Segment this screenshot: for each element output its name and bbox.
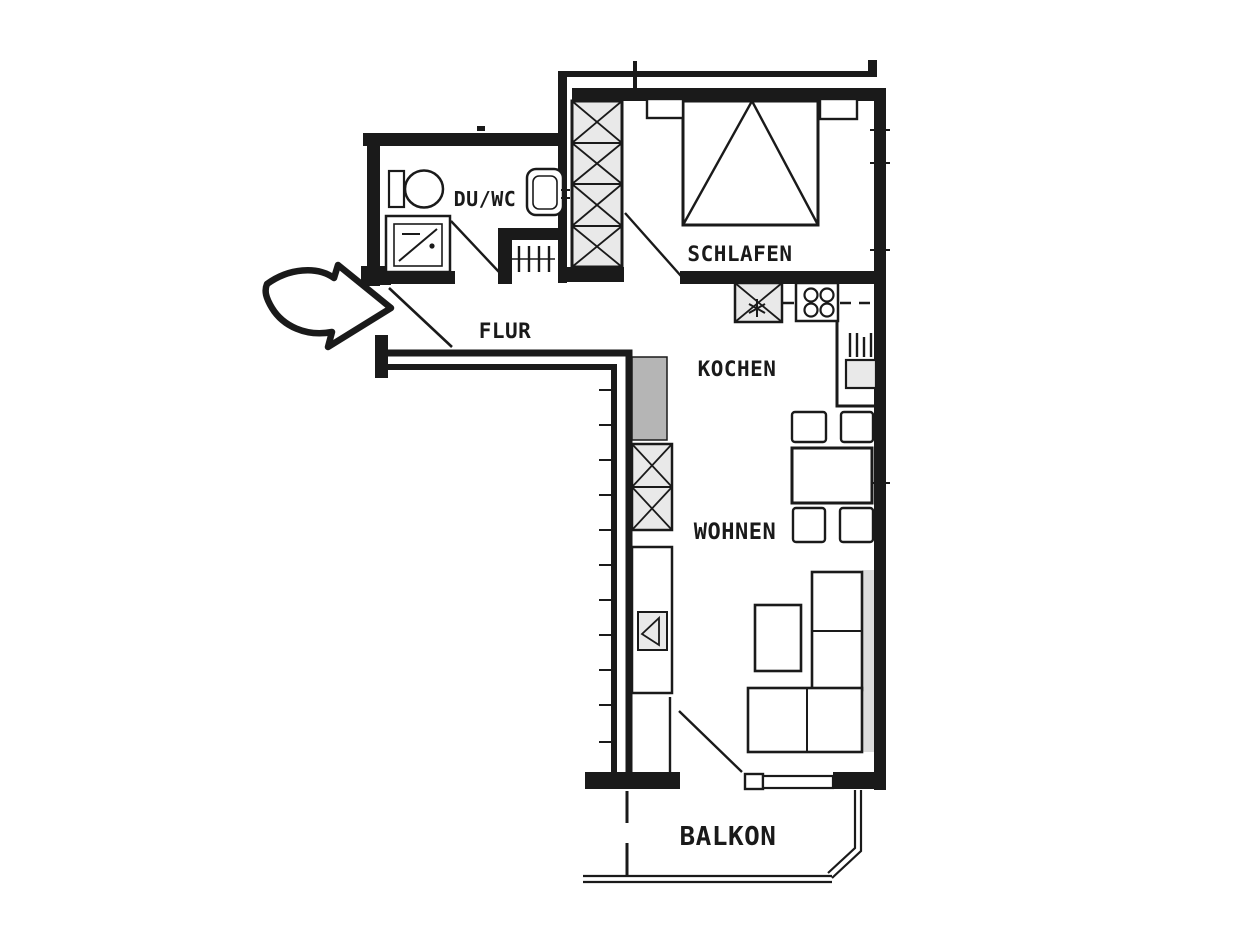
wall-wardrobe-plinth — [558, 267, 624, 282]
water-heater-grill — [850, 333, 871, 357]
dimension-tick — [477, 126, 485, 131]
sofa-group — [748, 570, 874, 752]
room-label-schlafen: SCHLAFEN — [687, 242, 792, 266]
living-window — [763, 776, 833, 788]
shower-drain-icon — [429, 243, 434, 248]
toilet-icon — [389, 171, 404, 207]
bath-door-swing — [451, 221, 499, 272]
room-label-wohnen: WOHNEN — [694, 520, 776, 545]
bedroom-door-swing — [625, 213, 681, 276]
wall-hall-outer-line — [383, 353, 629, 783]
bedroom-wardrobe — [572, 101, 622, 267]
coffee-table-icon — [755, 605, 801, 671]
nightstand-right — [820, 99, 857, 119]
dining-set — [792, 412, 873, 542]
chair-icon — [792, 412, 826, 442]
wall-bath-left — [367, 133, 380, 286]
chair-icon — [840, 508, 873, 542]
wall-right-upper — [874, 88, 886, 284]
duct-shaft-icon — [632, 357, 667, 440]
nightstand-left — [647, 99, 683, 118]
chair-icon — [793, 508, 825, 542]
wall-living-bottom-right — [833, 772, 886, 789]
room-label-duwc: DU/WC — [454, 187, 517, 211]
room-label-flur: FLUR — [479, 319, 532, 343]
balcony-edge-bottom — [583, 876, 832, 882]
floorplan-canvas: DU/WC SCHLAFEN FLUR KOCHEN WOHNEN BALKON — [0, 0, 1250, 938]
entry-door-swing — [389, 288, 452, 347]
wall-hall-end-cap — [375, 335, 388, 378]
sofa-icon — [748, 688, 862, 752]
floorplan-svg: DU/WC SCHLAFEN FLUR KOCHEN WOHNEN BALKON — [0, 0, 1250, 938]
chair-icon — [841, 412, 873, 442]
sofa-wall-shadow — [862, 570, 874, 752]
roof-outline-tick — [633, 61, 637, 88]
wall-bath-step-horizontal — [506, 228, 558, 240]
double-bed-icon — [683, 101, 818, 225]
living-west-strip — [632, 357, 672, 693]
room-label-kochen: KOCHEN — [698, 357, 777, 381]
balcony-door-swing — [679, 711, 742, 772]
balcony-door-jamb-block — [745, 774, 763, 789]
wall-hall-inner-line — [383, 367, 614, 783]
balcony-edge-right-bevel — [828, 790, 861, 878]
dining-table-icon — [792, 448, 872, 503]
wall-bath-top — [363, 133, 561, 146]
toilet-bowl-icon — [405, 171, 443, 208]
roof-outline-stub — [868, 60, 877, 77]
roof-outline-top — [558, 71, 873, 77]
kitchen-fixtures — [735, 283, 878, 406]
tv-cabinet-icon — [638, 612, 667, 650]
water-heater-icon — [846, 360, 876, 388]
room-label-balkon: BALKON — [680, 822, 777, 852]
bathroom-fixtures — [386, 169, 570, 272]
bedroom-furniture — [647, 99, 857, 225]
